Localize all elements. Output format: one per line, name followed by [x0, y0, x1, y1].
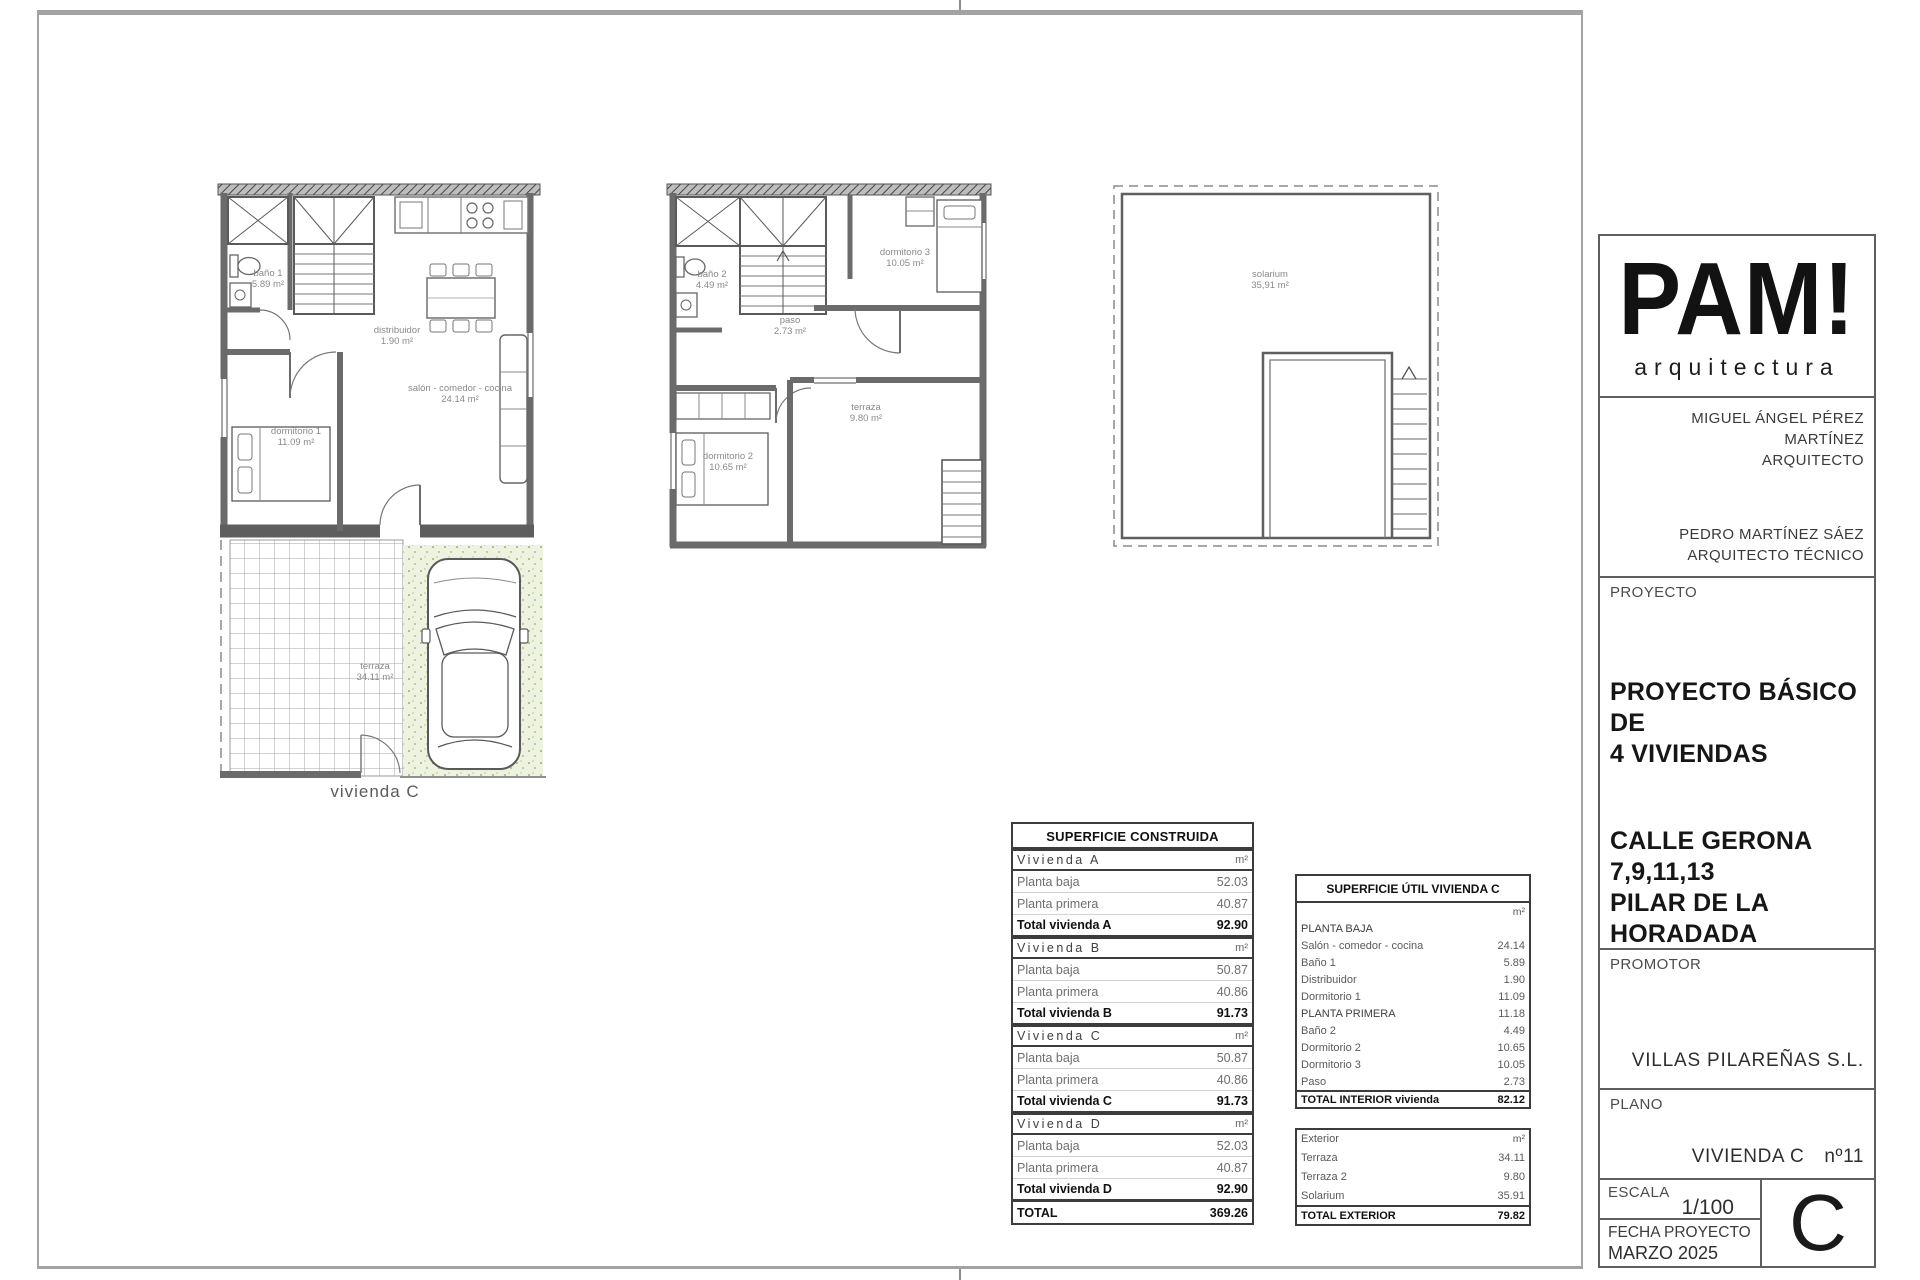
logo-box: PAM! arquitectura: [1598, 234, 1876, 398]
date-label: FECHA PROYECTO: [1608, 1223, 1752, 1243]
superficie-util-table: SUPERFICIE ÚTIL VIVIENDA C m²PLANTA BAJA…: [1295, 874, 1531, 1109]
table-row: TOTAL369.26: [1013, 1201, 1252, 1223]
drawing-name: VIVIENDA Cnº11: [1692, 1146, 1864, 1168]
room-label-paso: paso2.73 m²: [774, 315, 806, 337]
solarium-plan: [1110, 183, 1444, 555]
drawing-label: PLANO: [1610, 1096, 1864, 1113]
room-label-salon: salón - comedor - cocina24.14 m²: [408, 383, 512, 405]
project-label: PROYECTO: [1610, 584, 1864, 601]
table-title: SUPERFICIE CONSTRUIDA: [1013, 824, 1252, 849]
room-label-terraza-p1: terraza9.80 m²: [850, 402, 882, 424]
project-box: PROYECTO PROYECTO BÁSICO DE 4 VIVIENDAS …: [1598, 578, 1876, 950]
architects-box: MIGUEL ÁNGEL PÉREZ MARTÍNEZ ARQUITECTO P…: [1598, 398, 1876, 578]
architect-credit: MIGUEL ÁNGEL PÉREZ MARTÍNEZ ARQUITECTO: [1610, 408, 1864, 471]
sheet-border-left: [37, 10, 39, 1269]
room-label-dormitorio1: dormitorio 111.09 m²: [271, 426, 321, 448]
table-row: Vivienda Dm²: [1013, 1113, 1252, 1135]
promoter-label: PROMOTOR: [1610, 956, 1864, 973]
table-row: Dormitorio 310.05: [1297, 1056, 1529, 1073]
first-floor-plan: [664, 183, 994, 573]
table-row: Dormitorio 210.65: [1297, 1039, 1529, 1056]
scale-value: 1/100: [1681, 1196, 1734, 1220]
sheet-letter: C: [1762, 1180, 1874, 1266]
table-row: Terraza34.11: [1297, 1149, 1529, 1168]
studio-logo-subtitle: arquitectura: [1600, 354, 1874, 381]
drawing-box: PLANO VIVIENDA Cnº11: [1598, 1090, 1876, 1180]
table-row: Salón - comedor - cocina24.14: [1297, 937, 1529, 954]
promoter-box: PROMOTOR VILLAS PILAREÑAS S.L.: [1598, 950, 1876, 1090]
room-label-bano2: baño 24.49 m²: [696, 269, 728, 291]
scale-date-cells: ESCALA 1/100 FECHA PROYECTO MARZO 2025: [1600, 1180, 1762, 1266]
scale-date-box: ESCALA 1/100 FECHA PROYECTO MARZO 2025 C: [1598, 1180, 1876, 1268]
table-row: Paso2.73: [1297, 1073, 1529, 1090]
table-row: Vivienda Bm²: [1013, 937, 1252, 959]
promoter-name: VILLAS PILAREÑAS S.L.: [1632, 1050, 1864, 1072]
table-row: Total vivienda D92.90: [1013, 1179, 1252, 1201]
table-row: Total vivienda C91.73: [1013, 1091, 1252, 1113]
plan-caption-vivienda-c: vivienda C: [330, 782, 419, 802]
room-label-dormitorio3: dormitorio 310.05 m²: [880, 247, 930, 269]
technical-architect-credit: PEDRO MARTÍNEZ SÁEZ ARQUITECTO TÉCNICO: [1679, 524, 1864, 566]
table-row: Terraza 29.80: [1297, 1168, 1529, 1187]
table-row: Total vivienda B91.73: [1013, 1003, 1252, 1025]
table-row: Planta primera40.86: [1013, 1069, 1252, 1091]
date-value: MARZO 2025: [1608, 1243, 1752, 1263]
table-row: Planta baja52.03: [1013, 1135, 1252, 1157]
table-row: m²: [1297, 903, 1529, 920]
table-row: TOTAL INTERIOR vivienda82.12: [1297, 1090, 1529, 1107]
table-row: Total vivienda A92.90: [1013, 915, 1252, 937]
table-body: Exteriorm²Terraza34.11Terraza 29.80Solar…: [1297, 1130, 1529, 1224]
superficie-construida-table: SUPERFICIE CONSTRUIDA Vivienda Am²Planta…: [1011, 822, 1254, 1225]
fold-mark-bottom: [959, 1269, 961, 1280]
table-row: Planta primera40.86: [1013, 981, 1252, 1003]
room-label-distribuidor: distribuidor1.90 m²: [374, 325, 420, 347]
table-row: Vivienda Am²: [1013, 849, 1252, 871]
table-row: Planta primera40.87: [1013, 893, 1252, 915]
room-label-bano1: baño 15.89 m²: [252, 268, 284, 290]
scale-cell: ESCALA 1/100: [1600, 1180, 1760, 1220]
studio-logo: PAM!: [1600, 247, 1874, 350]
table-row: Exteriorm²: [1297, 1130, 1529, 1149]
table-row: Planta primera40.87: [1013, 1157, 1252, 1179]
sheet-border-bottom: [37, 1266, 1583, 1269]
table-row: TOTAL EXTERIOR79.82: [1297, 1205, 1529, 1224]
architectural-sheet: { "plans": { "ground_floor": { "caption"…: [0, 0, 1920, 1280]
table-title: SUPERFICIE ÚTIL VIVIENDA C: [1297, 876, 1529, 903]
table-row: Solarium35.91: [1297, 1186, 1529, 1205]
room-label-dormitorio2: dormitorio 210.65 m²: [703, 451, 753, 473]
title-block: PAM! arquitectura MIGUEL ÁNGEL PÉREZ MAR…: [1598, 234, 1876, 1268]
car-top-view: [420, 555, 530, 775]
table-row: Distribuidor1.90: [1297, 971, 1529, 988]
room-label-solarium: solarium35,91 m²: [1251, 269, 1289, 291]
project-title: PROYECTO BÁSICO DE 4 VIVIENDAS: [1610, 677, 1864, 770]
scale-label: ESCALA: [1608, 1184, 1670, 1201]
fold-mark-top: [959, 0, 961, 10]
table-row: PLANTA BAJA: [1297, 920, 1529, 937]
table-row: Dormitorio 111.09: [1297, 988, 1529, 1005]
table-row: Planta baja50.87: [1013, 959, 1252, 981]
sheet-border-right: [1581, 10, 1583, 1269]
table-body: Vivienda Am²Planta baja52.03Planta prime…: [1013, 849, 1252, 1223]
superficie-exterior-table: Exteriorm²Terraza34.11Terraza 29.80Solar…: [1295, 1128, 1531, 1226]
table-row: Planta baja52.03: [1013, 871, 1252, 893]
table-row: Baño 24.49: [1297, 1022, 1529, 1039]
table-body: m²PLANTA BAJASalón - comedor - cocina24.…: [1297, 903, 1529, 1107]
sheet-border-top: [37, 10, 1583, 15]
date-cell: FECHA PROYECTO MARZO 2025: [1600, 1220, 1760, 1266]
room-label-terraza-pb: terraza34.11 m²: [357, 661, 394, 683]
table-row: Baño 15.89: [1297, 954, 1529, 971]
table-row: Planta baja50.87: [1013, 1047, 1252, 1069]
table-row: Vivienda Cm²: [1013, 1025, 1252, 1047]
table-row: PLANTA PRIMERA11.18: [1297, 1005, 1529, 1022]
